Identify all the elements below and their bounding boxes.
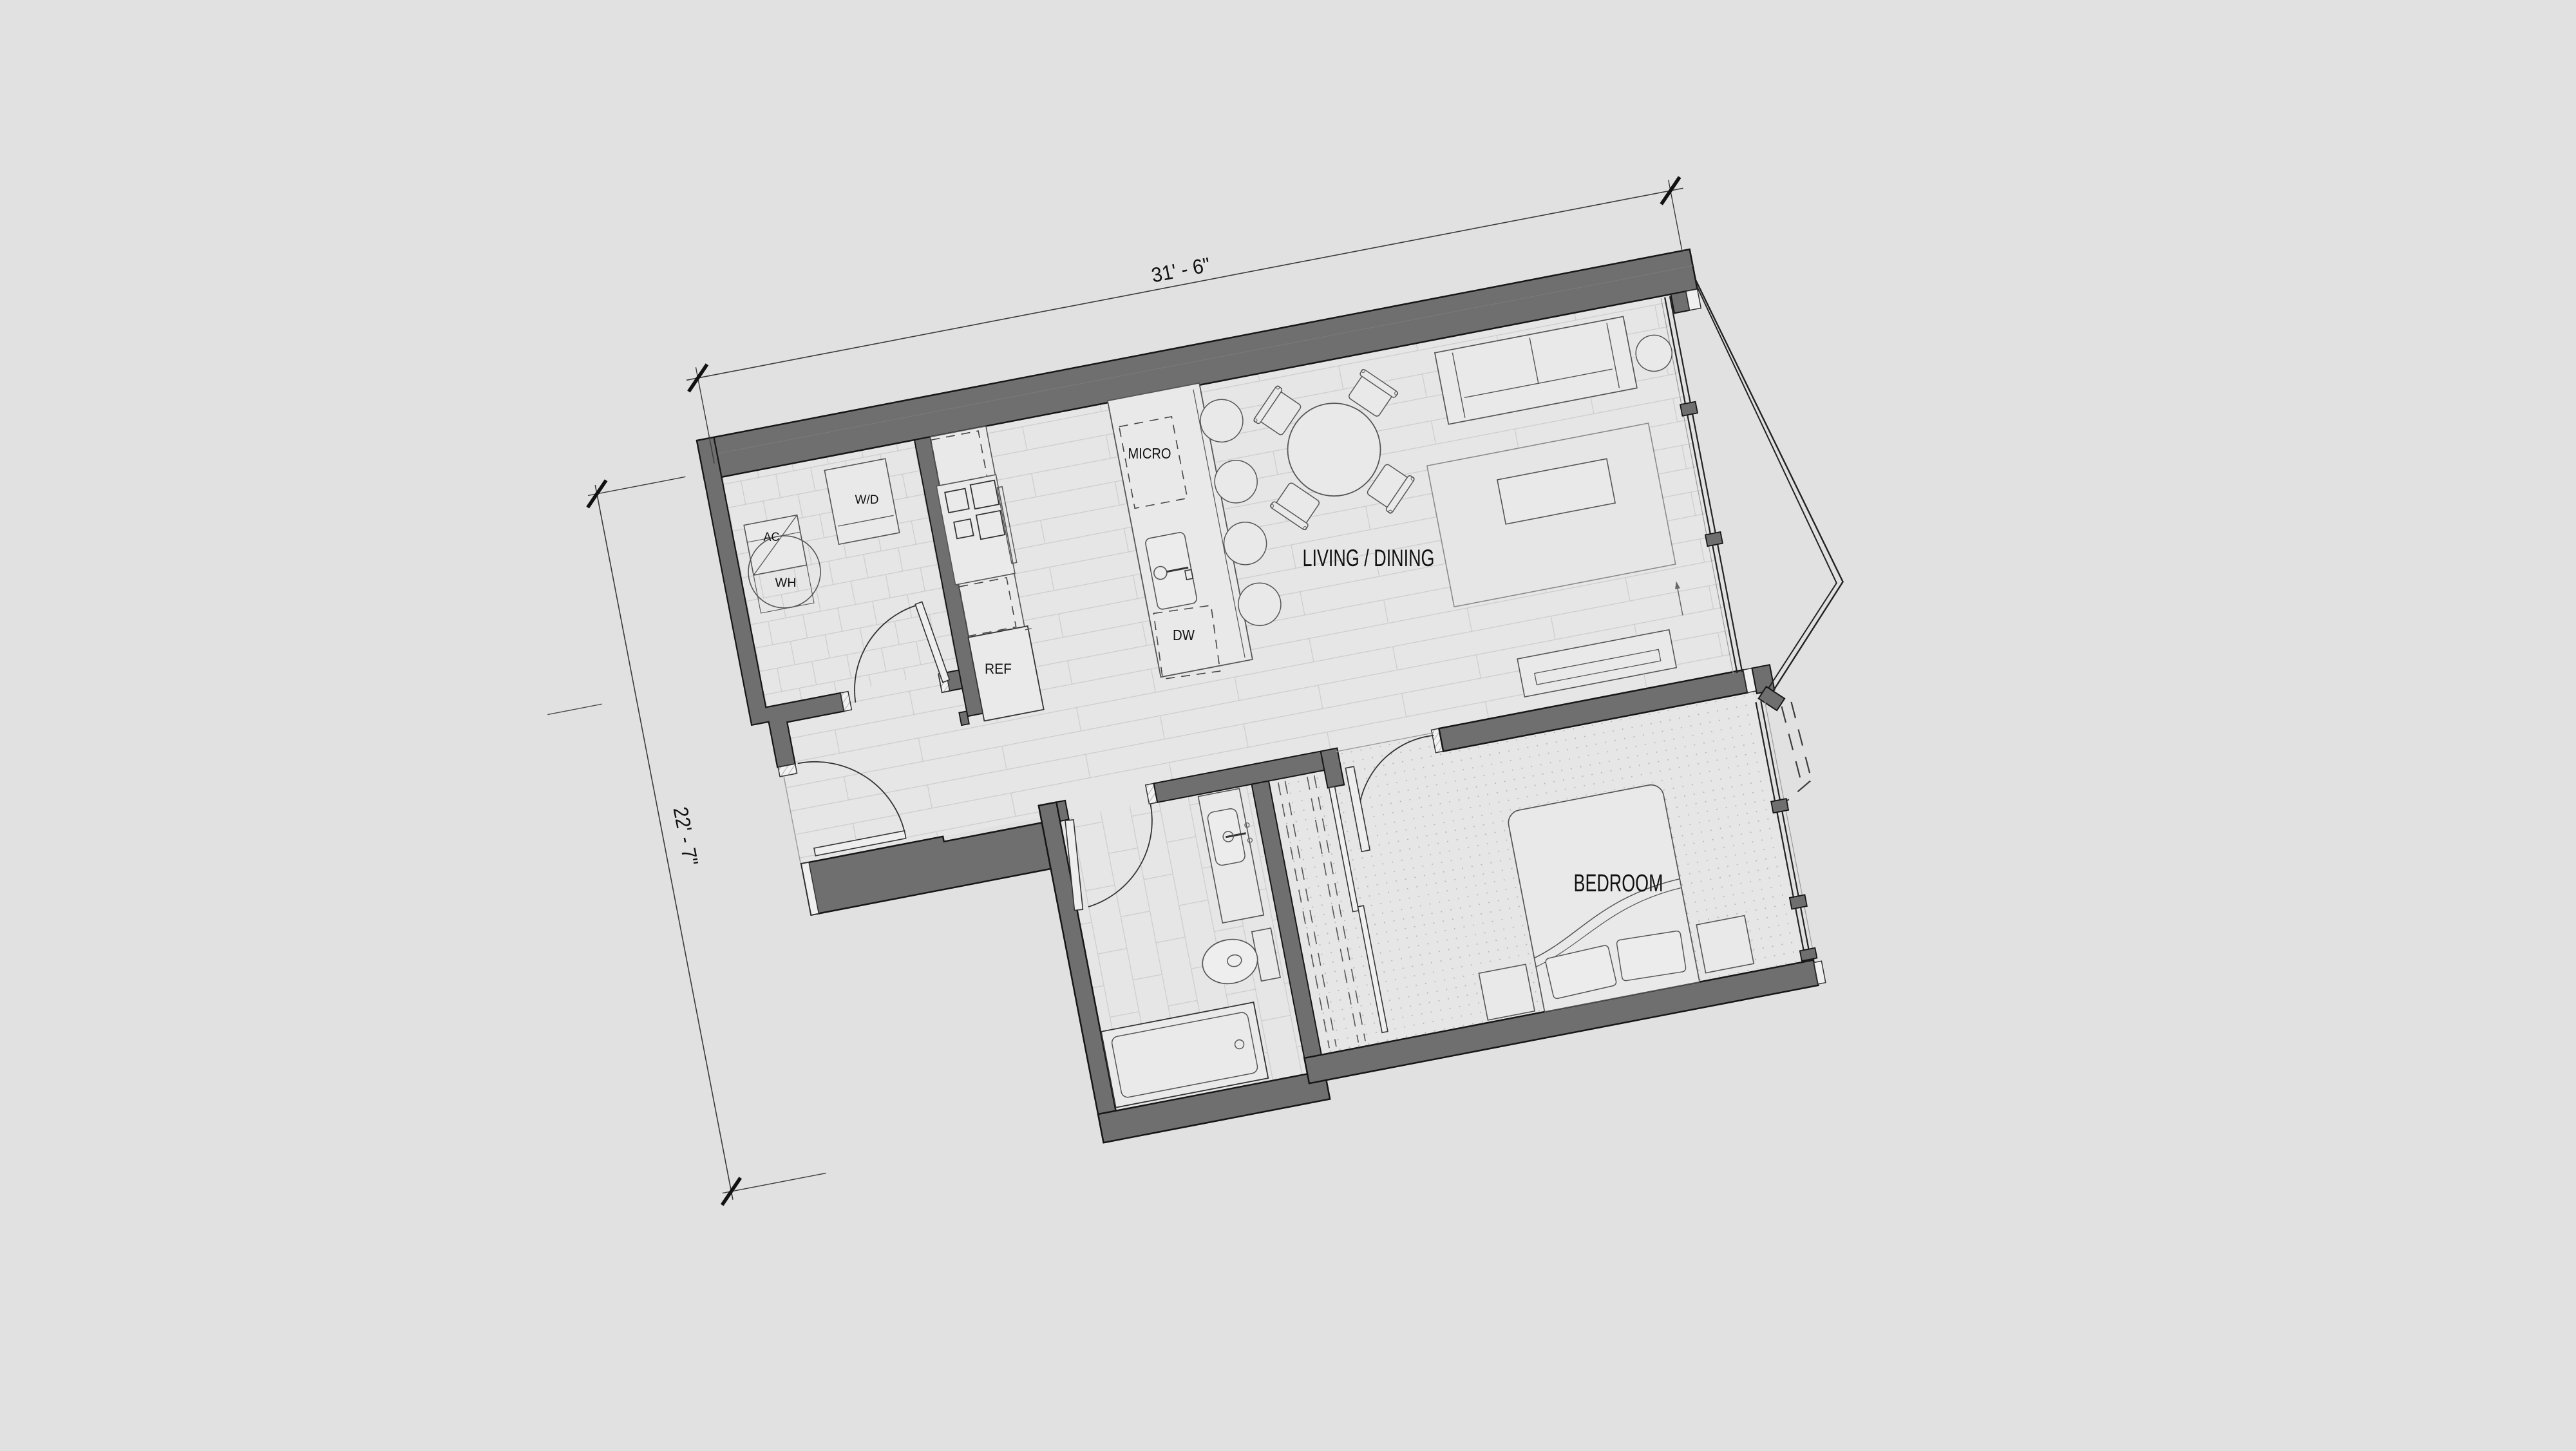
svg-text:DW: DW xyxy=(1173,627,1195,643)
svg-text:BEDROOM: BEDROOM xyxy=(1574,870,1663,897)
svg-text:LIVING / DINING: LIVING / DINING xyxy=(1303,545,1435,571)
svg-text:REF: REF xyxy=(985,661,1012,677)
svg-text:WH: WH xyxy=(775,576,797,590)
svg-text:W/D: W/D xyxy=(855,493,879,507)
svg-text:MICRO: MICRO xyxy=(1128,445,1171,462)
svg-text:AC: AC xyxy=(764,531,780,544)
